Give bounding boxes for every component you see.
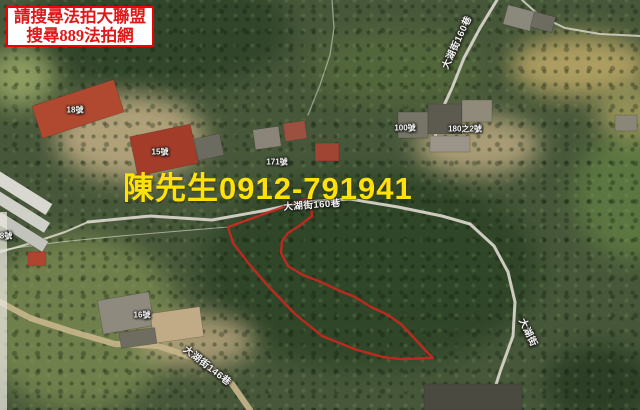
map-viewport[interactable]: 大湖街160巷 大湖街160巷 大湖街146巷 大湖街 18號 15號 171號… [0,0,640,410]
building [615,115,637,131]
building [194,134,224,161]
building [315,143,339,161]
promo-banner: 請搜尋法拍大聯盟 搜尋889法拍網 [6,6,154,47]
house-number-label: 8號 [0,231,12,242]
house-number-label: 16號 [134,310,151,321]
house-number-label: 180之2號 [448,124,482,135]
building [462,100,492,122]
parcel-outline [228,198,433,359]
building [424,384,522,410]
building [283,121,307,142]
trail [308,0,334,115]
contact-phone-overlay: 陳先生0912-791941 [123,163,413,208]
building [253,126,282,149]
promo-banner-line1: 請搜尋法拍大聯盟 [14,8,146,27]
building [530,11,555,32]
house-number-label: 100號 [394,123,415,134]
house-number-label: 15號 [152,147,169,158]
building [150,307,204,344]
promo-banner-line2: 搜尋889法拍網 [26,27,133,46]
building [430,136,470,152]
imagery-edge-strip [0,212,7,410]
house-number-label: 18號 [67,105,84,116]
building [28,252,46,266]
building [503,5,535,32]
road-east [470,224,515,410]
